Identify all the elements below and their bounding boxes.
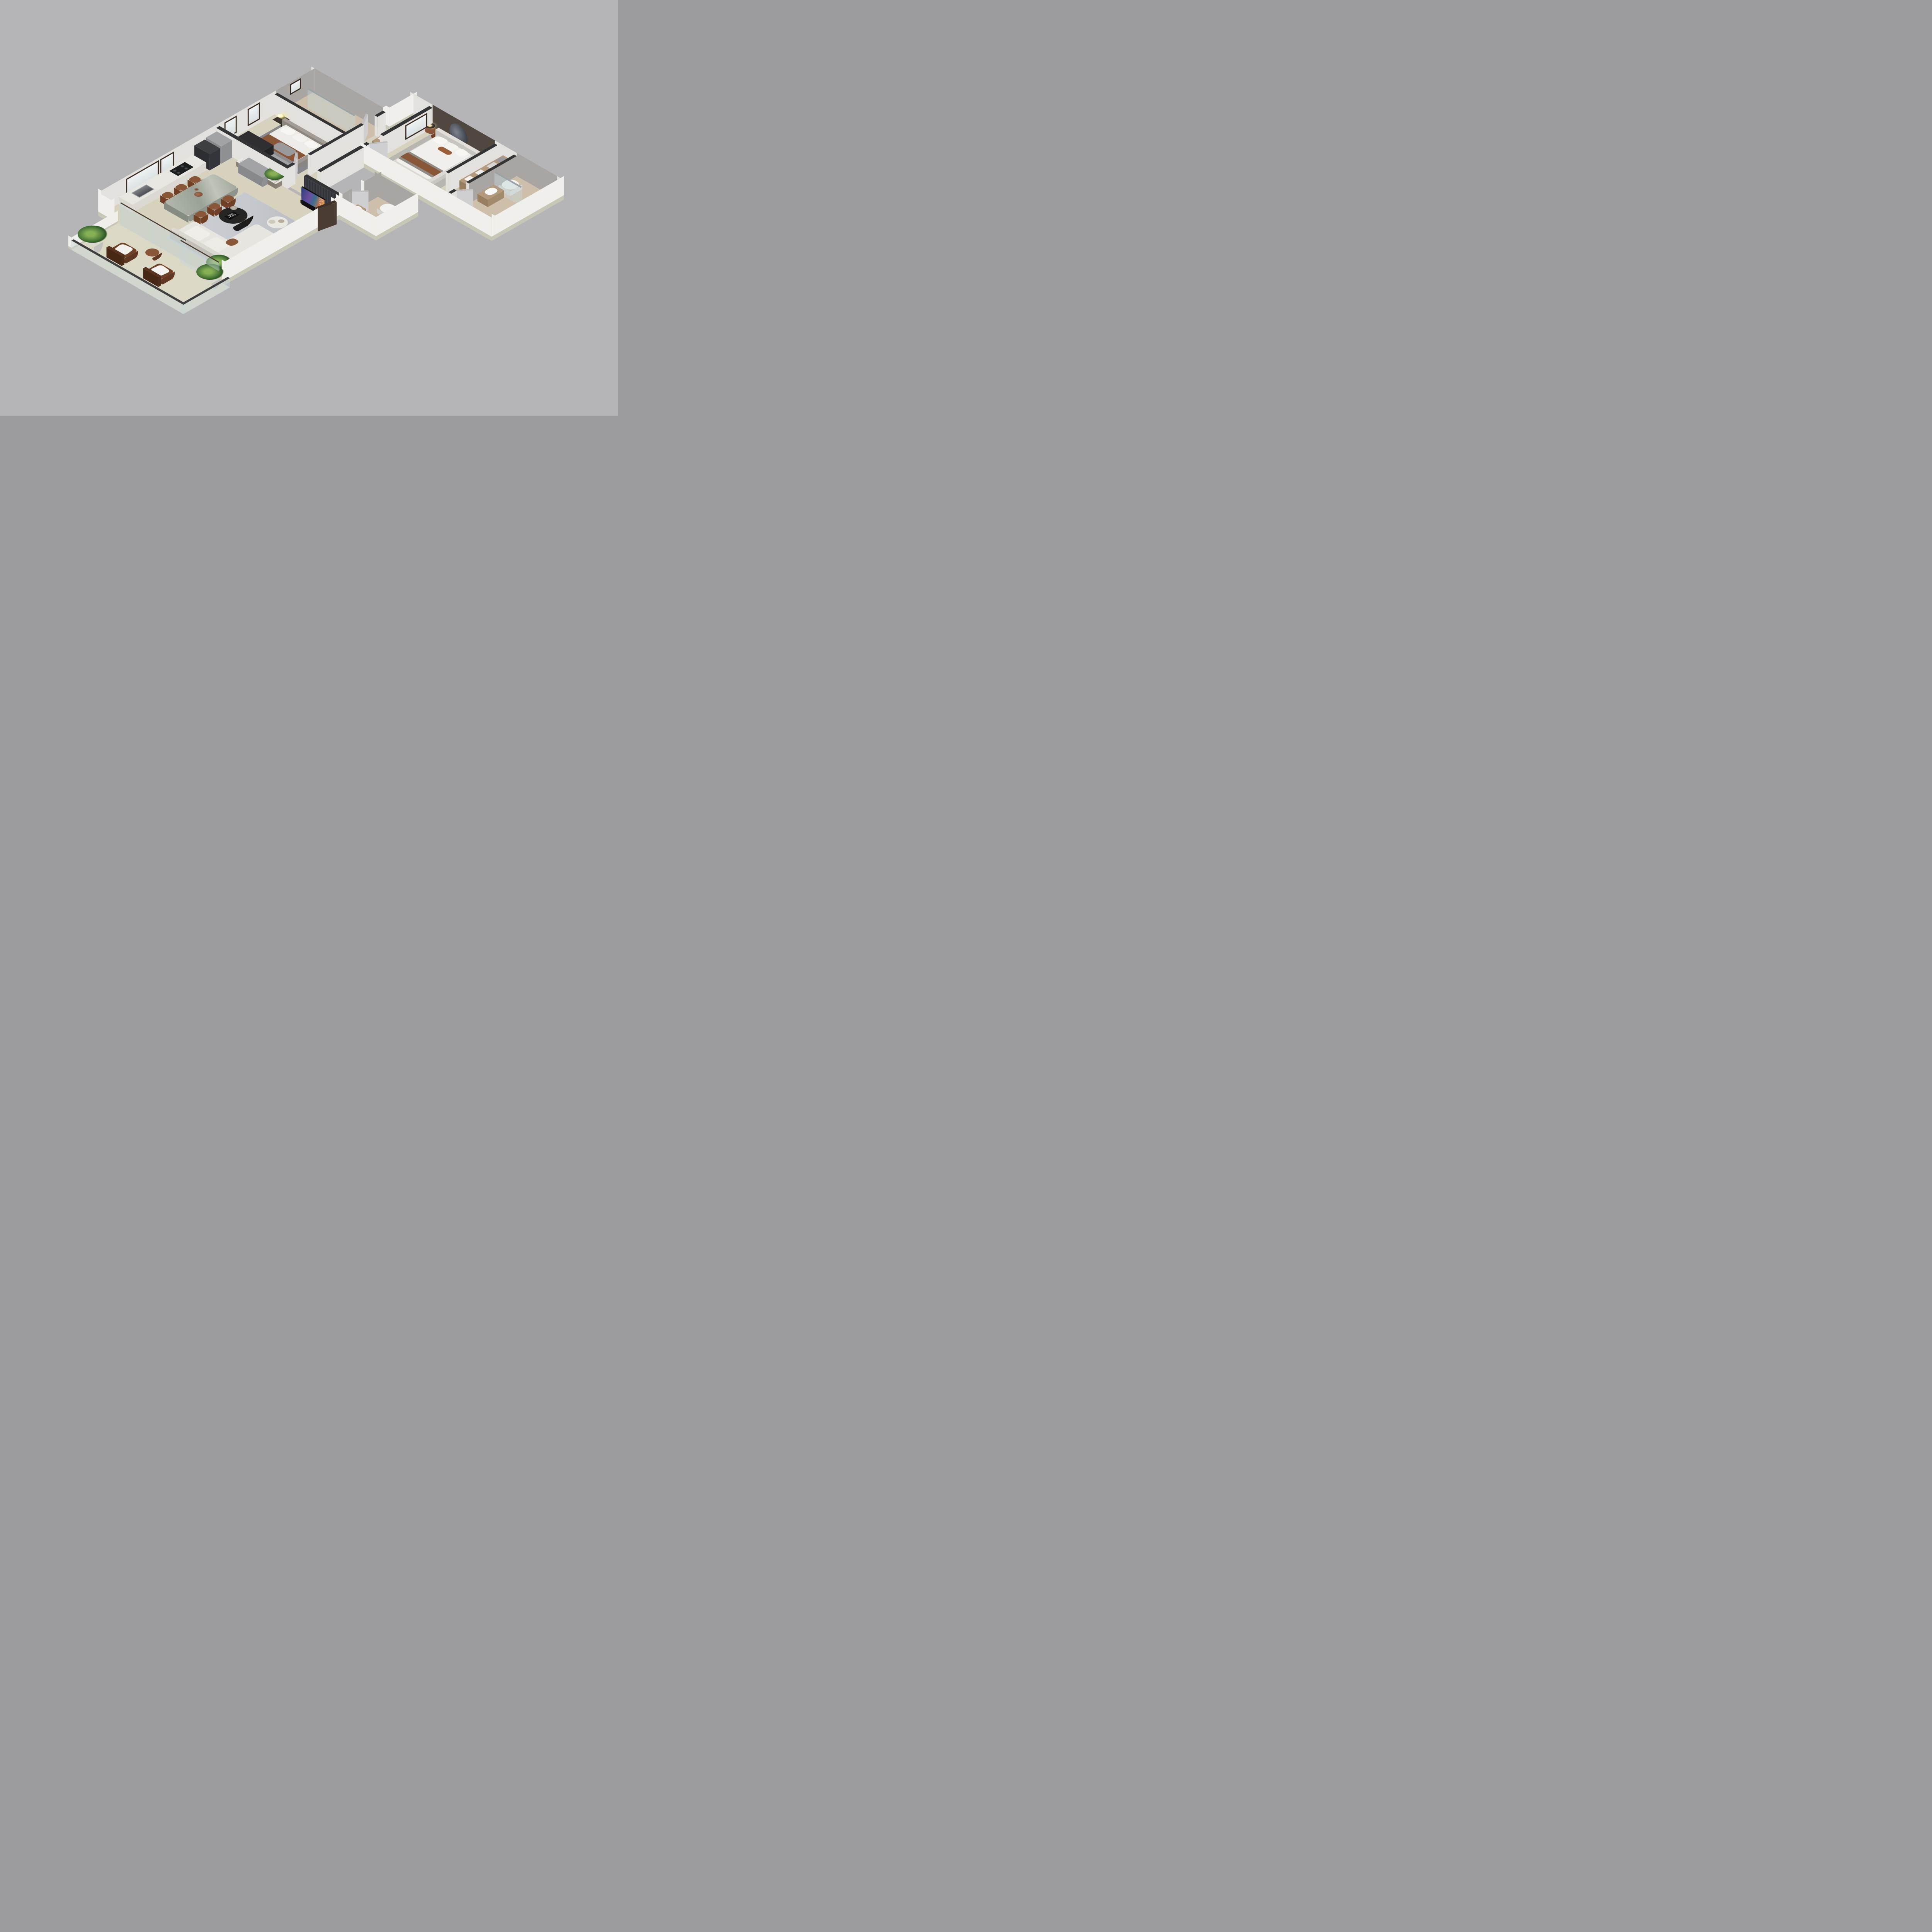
guest-wc-door xyxy=(350,190,368,192)
floor-plan-render: TOM FORD QLED TV xyxy=(0,0,618,416)
burner xyxy=(184,167,189,170)
bedroom2-window-b xyxy=(248,102,260,126)
burner xyxy=(176,172,181,175)
guest-wc-north-wall-a xyxy=(339,187,352,194)
ensuite-door xyxy=(455,189,473,191)
